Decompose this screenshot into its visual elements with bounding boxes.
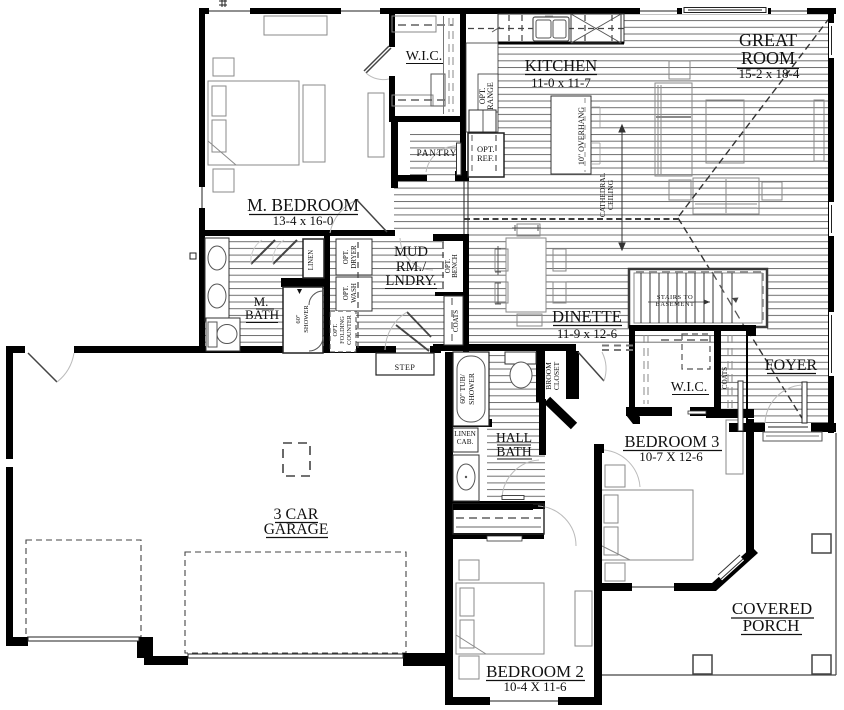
svg-text:LNDRY.: LNDRY. [386,273,437,289]
svg-text:PANTRY: PANTRY [417,148,458,158]
svg-text:STEP: STEP [395,363,416,372]
svg-text:COUNTER: COUNTER [346,314,353,345]
svg-text:OPT.: OPT. [342,286,350,301]
svg-text:HALL: HALL [496,430,532,445]
svg-text:GARAGE: GARAGE [264,521,329,538]
svg-text:M. BEDROOM: M. BEDROOM [247,195,359,215]
svg-text:LINEN: LINEN [454,430,476,438]
svg-text:PORCH: PORCH [743,616,800,635]
svg-text:FOYER: FOYER [765,357,818,374]
svg-text:CAB.: CAB. [457,438,474,446]
svg-text:13-4 x 16-0: 13-4 x 16-0 [273,213,334,228]
svg-text:MUD: MUD [394,244,428,260]
svg-text:W.I.C.: W.I.C. [406,49,442,64]
svg-text:OPT.: OPT. [332,323,339,336]
svg-text:15-2 x 18-4: 15-2 x 18-4 [739,66,800,81]
svg-text:11-9 x 12-6: 11-9 x 12-6 [557,326,618,341]
svg-text:60" TUB/: 60" TUB/ [458,373,467,403]
svg-text:FOLDING: FOLDING [339,316,346,344]
svg-text:KITCHEN: KITCHEN [525,56,597,75]
svg-text:RANGE: RANGE [486,82,495,110]
svg-text:COATS: COATS [452,310,460,332]
svg-text:W.I.C.: W.I.C. [671,380,707,395]
svg-text:DINETTE: DINETTE [552,307,622,326]
svg-text:60": 60" [295,314,302,324]
svg-text:10" OVERHANG: 10" OVERHANG [577,107,586,165]
svg-text:ROOM: ROOM [741,48,795,68]
svg-text:10-4 X 11-6: 10-4 X 11-6 [503,679,567,694]
svg-text:BENCH: BENCH [451,254,459,278]
svg-text:COATS: COATS [721,367,729,389]
svg-text:CEILING: CEILING [606,179,615,210]
svg-text:10-7 X 12-6: 10-7 X 12-6 [639,449,703,464]
svg-text:STAIRS TO: STAIRS TO [657,294,693,301]
svg-text:CLOSET: CLOSET [552,361,561,390]
svg-text:LINEN: LINEN [308,250,315,270]
svg-text:SHOWER: SHOWER [467,373,476,405]
svg-text:BATH: BATH [245,307,279,322]
svg-text:REF.: REF. [477,153,494,163]
svg-text:11-0 x 11-7: 11-0 x 11-7 [531,75,591,90]
svg-text:SHOWER: SHOWER [303,305,310,333]
svg-text:GREAT: GREAT [739,30,797,50]
svg-text:WASH: WASH [350,283,358,303]
svg-text:DRYER: DRYER [350,245,358,269]
svg-text:OPT.: OPT. [342,250,350,265]
svg-text:BATH: BATH [496,444,532,459]
